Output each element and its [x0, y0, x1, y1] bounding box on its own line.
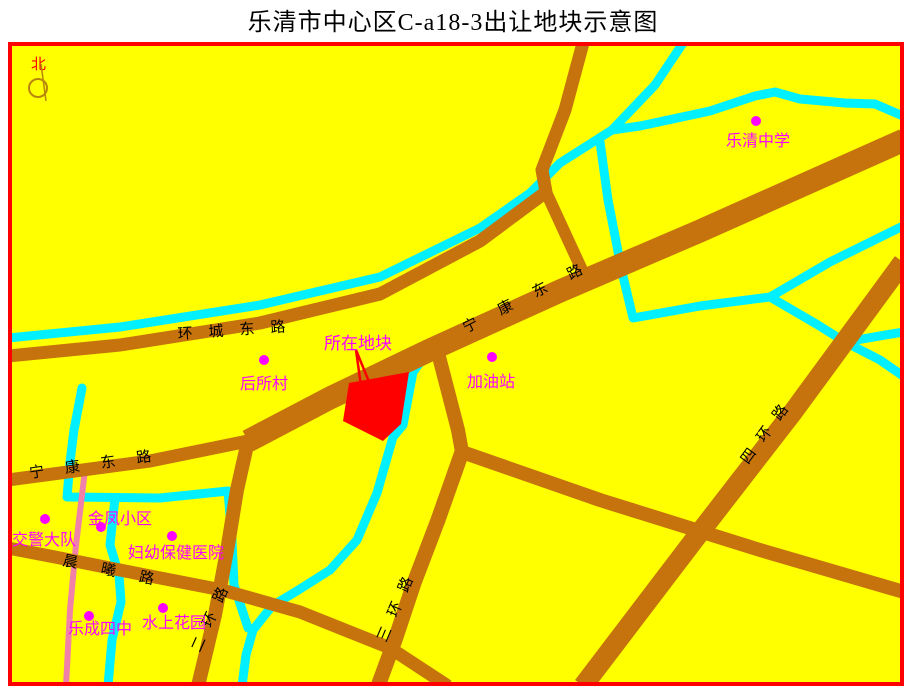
north-label: 北	[31, 56, 46, 73]
map-page: 乐清市中心区C-a18-3出让地块示意图	[0, 0, 906, 688]
poi-dot-yueqing-middle-school	[751, 116, 761, 126]
poi-dot-gas-station	[487, 352, 497, 362]
poi-label-water-garden: 水上花园	[142, 614, 206, 632]
poi-dot-mch-hospital	[167, 531, 177, 541]
poi-label-housuo-village: 后所村	[240, 375, 288, 393]
parcel-label: 所在地块	[324, 334, 392, 353]
poi-label-mch-hospital: 妇幼保健医院	[128, 544, 224, 562]
poi-label-gas-station: 加油站	[467, 373, 515, 391]
page-title: 乐清市中心区C-a18-3出让地块示意图	[248, 9, 659, 36]
poi-dot-yuecheng-no4-school	[84, 611, 94, 621]
poi-dot-water-garden	[158, 603, 168, 613]
poi-label-yueqing-middle-school: 乐清中学	[726, 132, 790, 150]
poi-dot-housuo-village	[259, 355, 269, 365]
poi-dot-traffic-police	[40, 514, 50, 524]
poi-label-yuecheng-no4-school: 乐成四中	[68, 620, 132, 638]
poi-label-jinfeng-community: 金凤小区	[88, 510, 152, 528]
land-parcel-map: 乐清市中心区C-a18-3出让地块示意图	[0, 0, 906, 688]
poi-label-traffic-police: 交警大队	[12, 531, 76, 549]
